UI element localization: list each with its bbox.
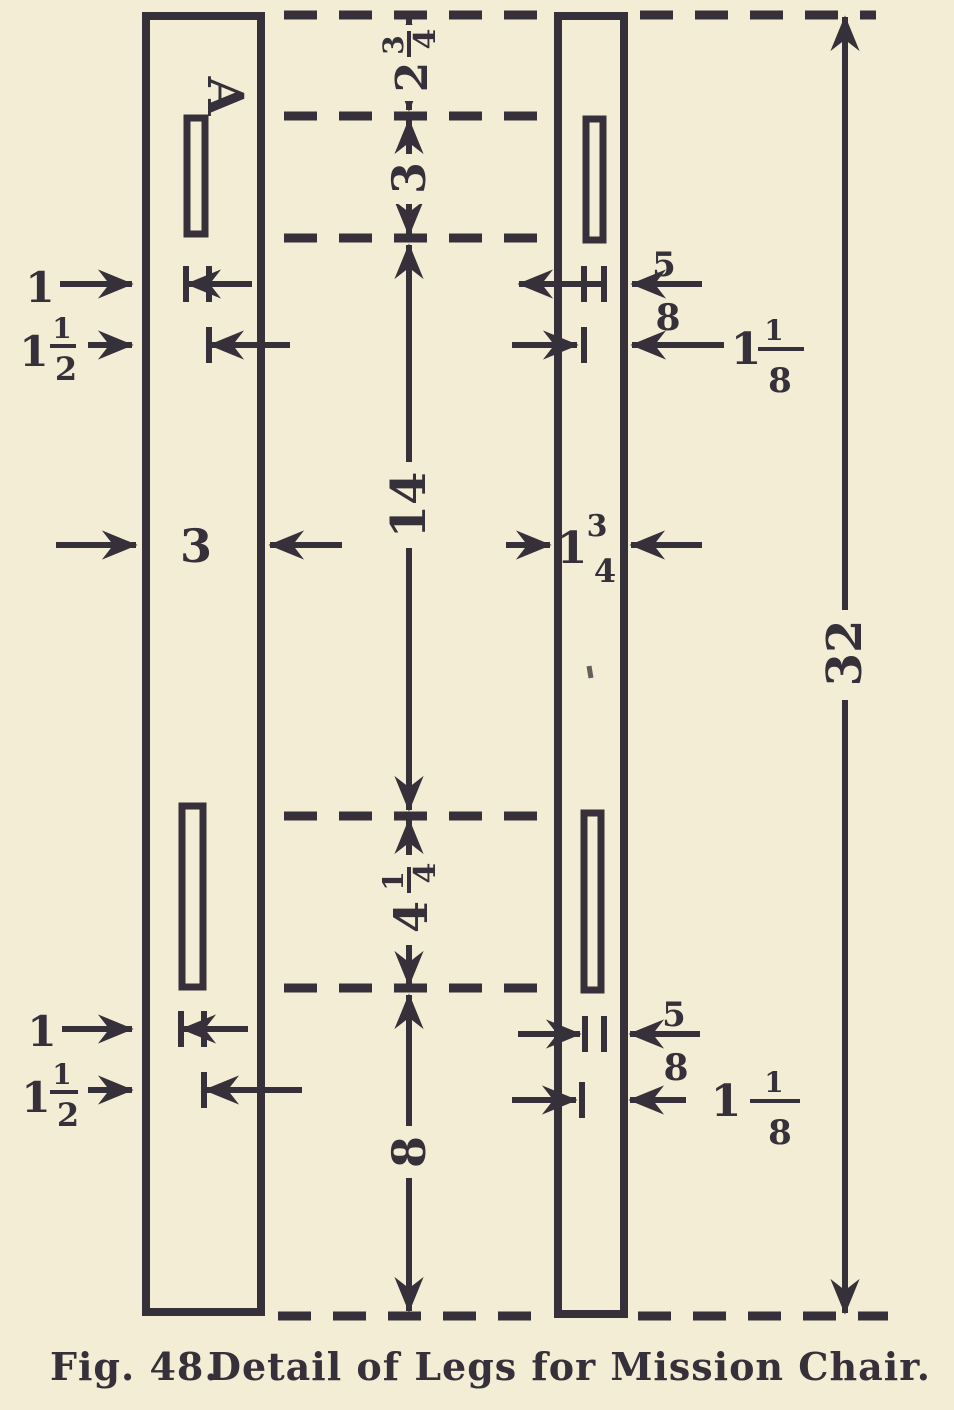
numerator: 3 [587,509,608,544]
dim-center-span: 14 [381,472,437,539]
denominator: 2 [55,350,77,388]
numerator: 5 [662,995,686,1035]
dim-top-offset-num: 3 [377,35,410,54]
denominator: 8 [663,1047,688,1089]
whole: 1 [21,1073,50,1122]
numerator: 1 [764,1066,783,1099]
denominator: 4 [594,552,616,590]
whole: 1 [19,327,48,376]
part-label-a: A [196,76,255,117]
dim-bottom-offset: 8 [382,1136,436,1168]
denominator: 2 [57,1096,79,1134]
caption-figure-number: Fig. 48. [50,1344,219,1389]
dim-left-bottom-edge-label: 1 [27,1007,56,1056]
dim-top-offset-whole: 2 [387,62,438,93]
denominator: 8 [655,297,680,339]
whole: 1 [557,523,588,574]
dim-lower-slot-den: 4 [408,863,443,884]
dim-top-offset-den: 4 [408,29,443,50]
figure-detail-of-legs: 2 3 4 3 14 4 1 4 8 32 A 1 1 1 2 [0,0,954,1410]
numerator: 1 [52,1058,71,1091]
dim-overall-length: 32 [817,620,873,687]
figure-caption: Fig. 48. Detail of Legs for Mission Chai… [50,1344,931,1389]
dim-label-top-offset: 2 3 4 [377,25,443,101]
dim-left-leg-width-label: 3 [180,519,212,573]
dim-top-slot-length: 3 [382,162,436,194]
whole: 1 [711,1076,742,1127]
ink-speck [589,666,591,678]
numerator: 1 [764,314,783,347]
denominator: 8 [768,1113,792,1153]
dim-lower-slot-num: 1 [377,871,410,890]
dim-lower-slot-whole: 4 [384,901,438,933]
numerator: 1 [52,312,71,345]
whole: 1 [731,324,762,375]
dim-left-top-edge-label: 1 [25,263,54,312]
dim-label-lower-slot: 4 1 4 [377,855,443,945]
caption-title: Detail of Legs for Mission Chair. [208,1344,931,1389]
numerator: 5 [652,245,676,285]
denominator: 8 [768,361,792,401]
